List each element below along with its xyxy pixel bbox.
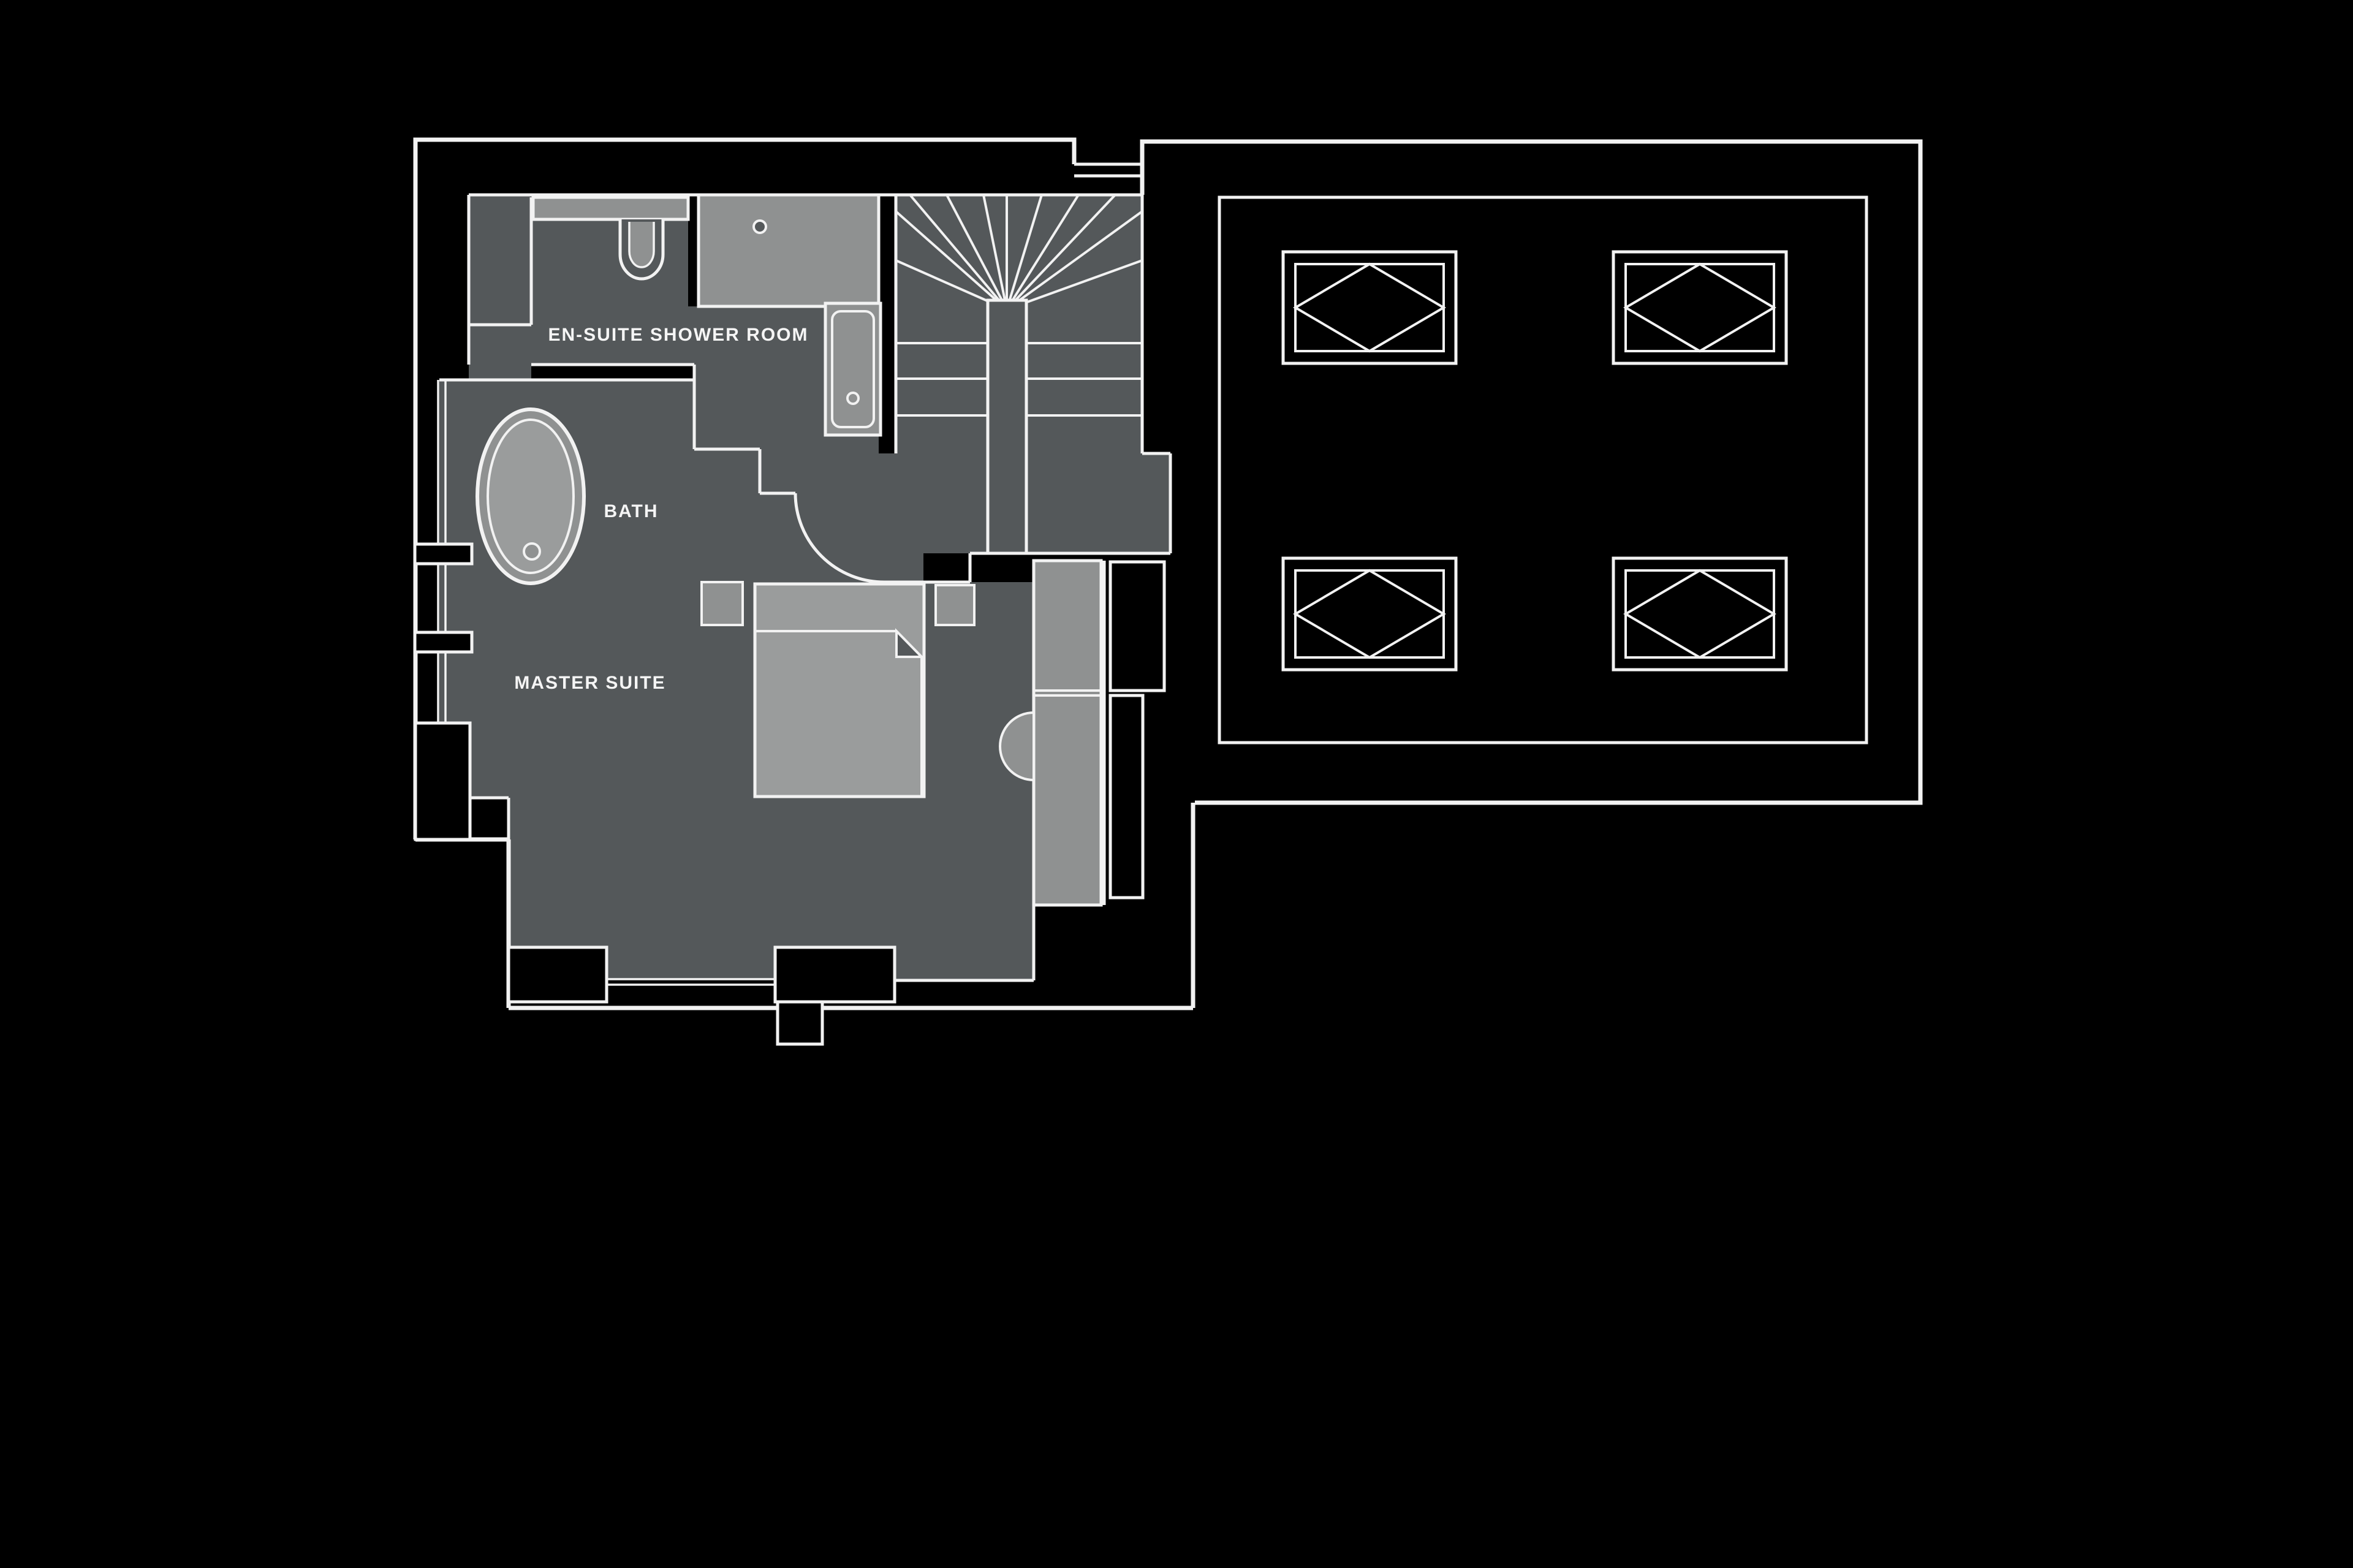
room-label-en-suite: EN-SUITE SHOWER ROOM	[548, 325, 808, 345]
toilet	[620, 219, 663, 279]
shower-enclosure	[825, 303, 881, 435]
skylight	[1613, 558, 1786, 670]
wall-vanity-gap	[688, 195, 699, 306]
wall-duct-lower	[1110, 695, 1143, 898]
link-corridor-walls	[1074, 164, 1142, 176]
skylight	[1283, 558, 1456, 670]
vanity-basin	[699, 195, 879, 306]
skylight	[1283, 252, 1456, 363]
floor-plan-drawing: EN-SUITE SHOWER ROOM BATH MASTER SUITE	[0, 0, 2353, 1568]
bed-mattress	[755, 584, 924, 797]
roof-terrace-inner-wall	[1219, 197, 1866, 743]
bedside-table-left	[702, 582, 743, 625]
stair-newel-post	[988, 300, 1026, 553]
cistern-counter	[533, 197, 688, 219]
wall-duct-upper	[1110, 562, 1164, 691]
wall-bedhead	[923, 553, 970, 582]
skylight	[1613, 252, 1786, 363]
floor-plan-page: EN-SUITE SHOWER ROOM BATH MASTER SUITE	[0, 0, 2353, 1568]
wall-pier-corner	[415, 723, 470, 839]
room-label-bath: BATH	[604, 501, 658, 521]
room-label-master-suite: MASTER SUITE	[514, 673, 665, 693]
oval-bathtub	[477, 409, 584, 583]
wall-band-ensuite	[531, 365, 694, 380]
bedside-table-right	[936, 585, 974, 625]
